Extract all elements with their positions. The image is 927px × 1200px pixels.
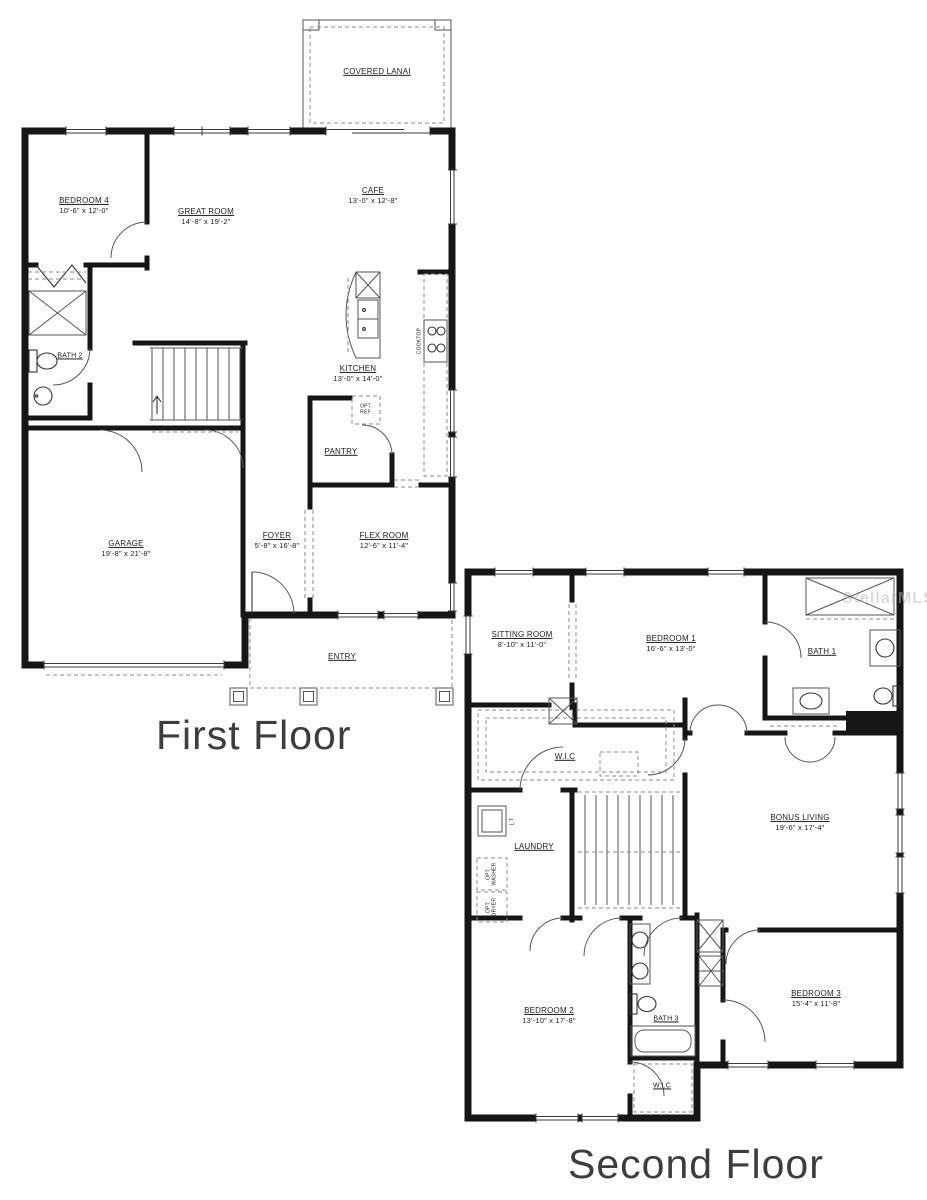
bedroom4-closet-doors <box>28 265 86 287</box>
first-floor-title: First Floor <box>156 712 352 759</box>
bedroom1-label: BEDROOM 1 16'-6" x 13'-0" <box>646 634 696 654</box>
laundry-label: LAUNDRY <box>514 842 554 852</box>
flex-room-label: FLEX ROOM 12'-6" x 11'-4" <box>360 531 409 551</box>
garage-label: GARAGE 19'-8" x 21'-8" <box>101 539 150 559</box>
opt-washer-label: OPT. WASHER <box>487 860 498 888</box>
bath1-label: BATH 1 <box>808 647 837 657</box>
kitchen-island <box>346 272 380 358</box>
pantry-label: PANTRY <box>325 447 358 457</box>
wic2-label: W.I.C <box>653 1081 671 1090</box>
kitchen-counter-cooktop <box>424 274 447 476</box>
mls-watermark: StellarMLS <box>842 590 927 608</box>
bath2-label: BATH 2 <box>57 351 82 360</box>
bedroom2-label: BEDROOM 2 13'-10" x 17'-8" <box>522 1006 576 1026</box>
cooktop-label: COOKTOP <box>417 328 423 354</box>
kitchen-label: KITCHEN 13'-0" x 14'-0" <box>333 364 382 384</box>
foyer-label: FOYER 5'-8" x 16'-8" <box>255 531 300 551</box>
bath3-label: BATH 3 <box>653 1014 678 1023</box>
bedroom3-label: BEDROOM 3 15'-4" x 11'-8" <box>791 989 841 1009</box>
bonus-living-label: BONUS LIVING 19'-6" x 17'-4" <box>770 813 829 833</box>
linen-closets <box>697 920 723 986</box>
opt-ref-label: OPT. REF. <box>354 405 378 416</box>
second-floor-stairs <box>578 792 683 908</box>
covered-lanai-label: COVERED LANAI <box>343 67 411 77</box>
floor-plan-image: COVERED LANAI BEDROOM 4 10'-6" x 12'-0" … <box>0 0 927 1200</box>
bath3-fixtures <box>630 924 695 1056</box>
first-floor-stairs <box>150 348 243 432</box>
great-room-label: GREAT ROOM 14'-8" x 19'-2" <box>178 207 234 227</box>
laundry-tub-label: L.T. <box>510 817 516 826</box>
first-floor-plan <box>25 20 457 705</box>
entry-label: ENTRY <box>328 652 356 662</box>
sitting-room-label: SITTING ROOM 8'-10" x 11'-0" <box>491 630 552 650</box>
floor-plan-drawing <box>0 0 927 1200</box>
wic-master-label: W.I.C <box>555 752 576 762</box>
opt-dryer-label: OPT. DRYER <box>487 893 498 921</box>
second-floor-title: Second Floor <box>568 1141 824 1188</box>
cafe-label: CAFE 13'-0" x 12'-8" <box>348 186 397 206</box>
bedroom4-label: BEDROOM 4 10'-6" x 12'-0" <box>59 196 109 216</box>
master-closet-shelves <box>478 698 674 780</box>
